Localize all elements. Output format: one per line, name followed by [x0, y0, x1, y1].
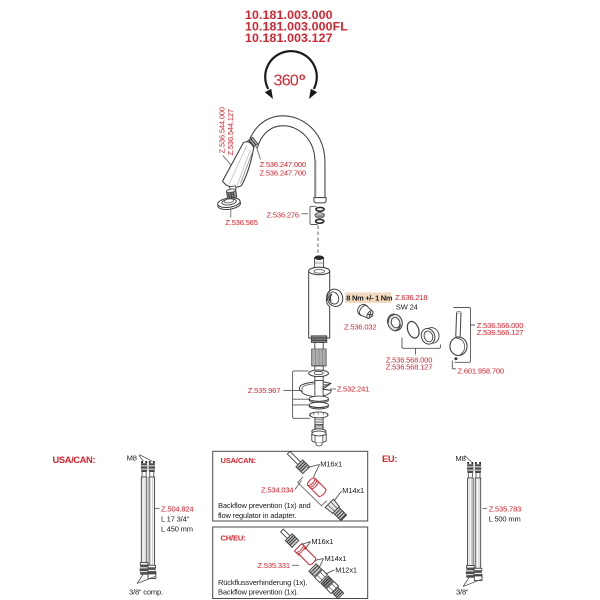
svg-text:8 Nm +/- 1 Nm: 8 Nm +/- 1 Nm [346, 294, 393, 303]
svg-text:o: o [299, 71, 305, 83]
svg-text:3/8“ comp.: 3/8“ comp. [129, 588, 163, 597]
svg-text:360: 360 [274, 73, 299, 90]
svg-text:Z.534.034: Z.534.034 [261, 486, 293, 495]
svg-text:Z.536.565: Z.536.565 [225, 218, 257, 227]
svg-text:M12x1: M12x1 [335, 566, 357, 575]
svg-text:L 500 mm: L 500 mm [489, 515, 521, 524]
svg-text:EU:: EU: [382, 454, 397, 464]
svg-text:Z.535.783: Z.535.783 [489, 505, 521, 514]
svg-text:Rückflussverhinderung (1x).: Rückflussverhinderung (1x). [218, 578, 307, 587]
svg-text:M8: M8 [456, 454, 466, 463]
svg-text:Z.535.967: Z.535.967 [248, 386, 280, 395]
svg-text:Z.636.218: Z.636.218 [395, 293, 427, 302]
svg-text:M16x1: M16x1 [311, 537, 333, 546]
svg-text:Z.536.568.127: Z.536.568.127 [386, 362, 432, 371]
svg-text:M14x1: M14x1 [342, 486, 364, 495]
svg-text:M14x1: M14x1 [325, 554, 347, 563]
svg-text:M8: M8 [127, 454, 137, 463]
svg-text:Z.536.544.127: Z.536.544.127 [226, 109, 235, 155]
svg-text:SW 24: SW 24 [396, 303, 418, 312]
svg-text:flow regulator in adapter.: flow regulator in adapter. [218, 511, 296, 520]
svg-text:10.181.003.127: 10.181.003.127 [245, 31, 333, 45]
svg-text:M16x1: M16x1 [320, 460, 342, 469]
svg-text:Z.601.958.700: Z.601.958.700 [458, 366, 504, 375]
svg-text:CH/EU:: CH/EU: [221, 534, 246, 543]
svg-text:Z.536.566.127: Z.536.566.127 [477, 328, 523, 337]
svg-text:Z.536.276: Z.536.276 [267, 210, 299, 219]
svg-text:USA/CAN:: USA/CAN: [221, 456, 256, 465]
svg-text:Z.536.247.700: Z.536.247.700 [260, 168, 306, 177]
svg-text:USA/CAN:: USA/CAN: [53, 455, 96, 465]
svg-text:L 450 mm: L 450 mm [161, 524, 193, 533]
svg-text:Z.536.032: Z.536.032 [344, 323, 376, 332]
svg-text:Z.504.824: Z.504.824 [161, 505, 193, 514]
svg-text:Z.535.331: Z.535.331 [258, 561, 290, 570]
svg-text:L 17 3/4“: L 17 3/4“ [161, 514, 190, 523]
svg-text:Z.532.241: Z.532.241 [337, 385, 369, 394]
svg-text:3/8“: 3/8“ [456, 587, 469, 596]
svg-text:Backflow prevention (1x).: Backflow prevention (1x). [218, 588, 299, 597]
svg-text:Backflow prevention (1x) and: Backflow prevention (1x) and [218, 501, 311, 510]
